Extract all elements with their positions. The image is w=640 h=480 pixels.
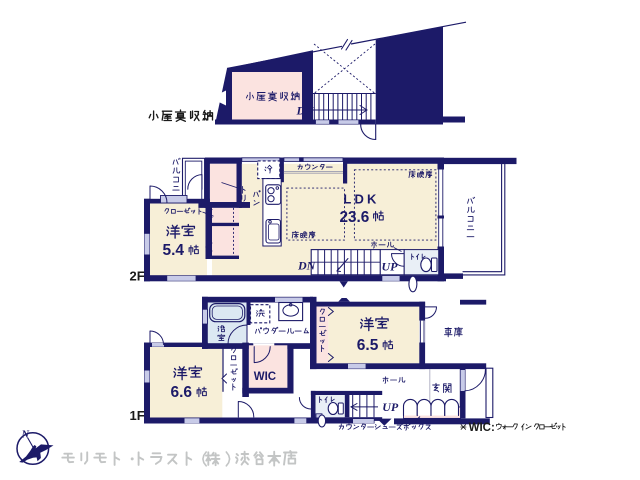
svg-text:2F: 2F (130, 269, 145, 284)
svg-text:UP: UP (382, 260, 399, 274)
svg-text:DN: DN (297, 259, 317, 273)
svg-text:6.5: 6.5 (357, 337, 379, 354)
svg-text:WIC: WIC (254, 371, 276, 383)
svg-text:5.4: 5.4 (163, 242, 185, 259)
svg-text:UP: UP (382, 400, 399, 414)
svg-text:1F: 1F (130, 408, 145, 423)
svg-text:WIC:: WIC: (469, 422, 495, 434)
svg-text:LDK: LDK (343, 191, 379, 206)
svg-text:6.6: 6.6 (171, 384, 193, 401)
